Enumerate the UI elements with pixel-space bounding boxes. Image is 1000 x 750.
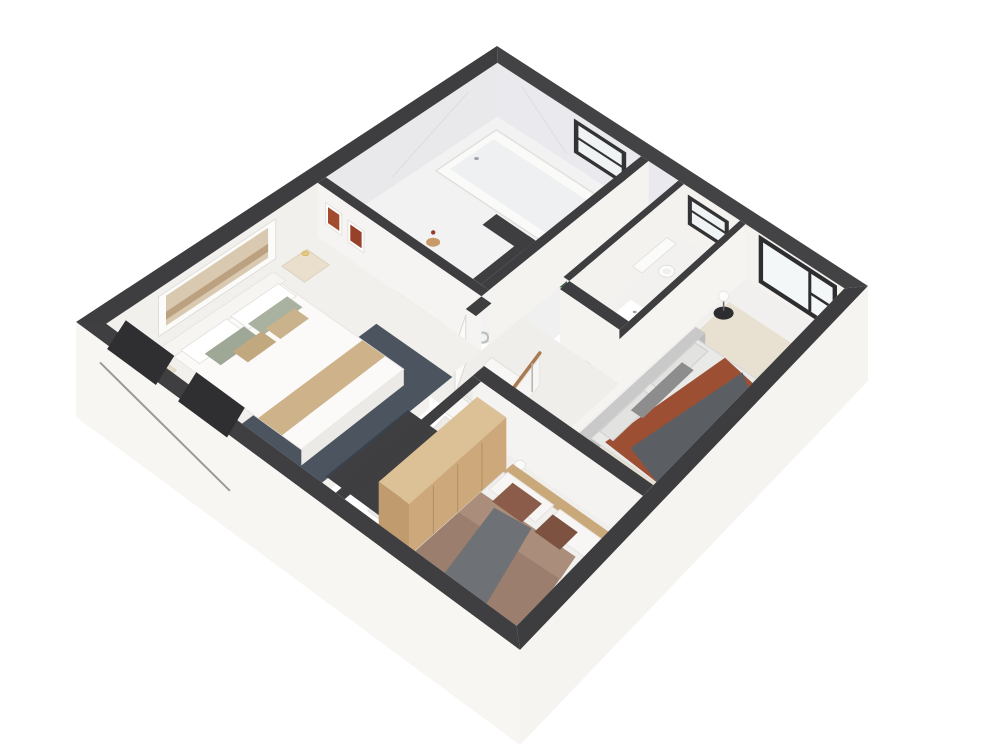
floorplan-page (0, 0, 1000, 750)
lamp-shade (719, 291, 729, 301)
bottle-decor (431, 230, 435, 234)
wc-tap (633, 311, 637, 313)
side-stool (426, 238, 440, 247)
toilet-seat (662, 268, 671, 274)
lamp-small (302, 251, 309, 255)
bathtub-faucet (474, 157, 479, 160)
floorplan-render (0, 0, 1000, 750)
